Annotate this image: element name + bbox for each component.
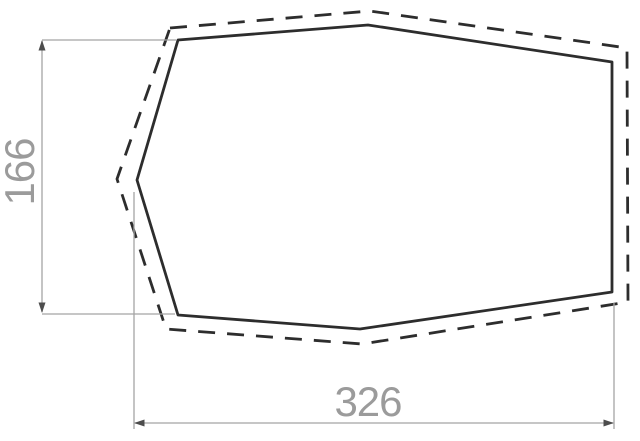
width-dimension-label: 326 (334, 378, 401, 425)
arrow-right-icon (604, 420, 615, 427)
height-dimension: 166 (0, 40, 176, 314)
diagram-canvas: 166 326 (0, 0, 640, 441)
solid-footprint-outline (137, 25, 612, 329)
height-dimension-label: 166 (0, 138, 43, 205)
dimension-diagram: 166 326 (0, 0, 640, 441)
arrow-up-icon (39, 40, 46, 51)
arrow-left-icon (134, 420, 145, 427)
arrow-down-icon (39, 303, 46, 314)
width-dimension: 326 (134, 192, 614, 429)
dashed-offset-outline (117, 11, 628, 344)
